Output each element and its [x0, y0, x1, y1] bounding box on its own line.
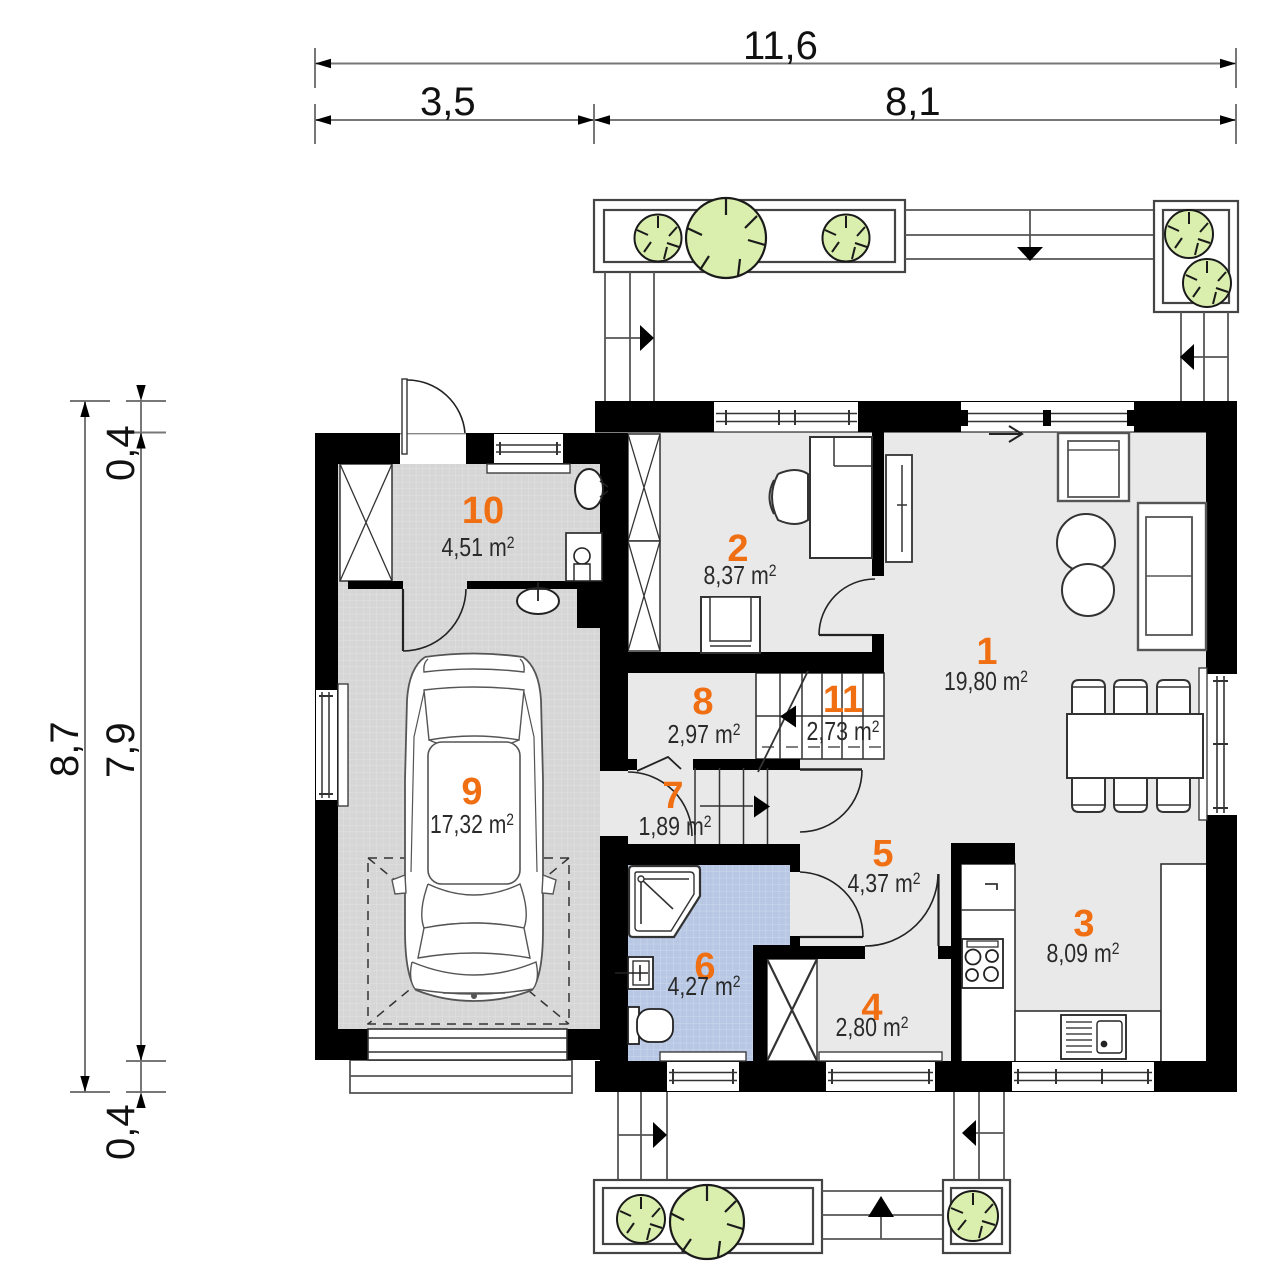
svg-text:8: 8	[692, 681, 713, 723]
svg-text:11: 11	[823, 679, 863, 721]
svg-text:1,89 m2: 1,89 m2	[639, 811, 712, 841]
svg-text:7,9: 7,9	[99, 722, 143, 778]
svg-text:4,27 m2: 4,27 m2	[668, 971, 741, 1001]
svg-text:2,80 m2: 2,80 m2	[836, 1012, 909, 1042]
svg-text:8,1: 8,1	[885, 80, 941, 124]
svg-text:10: 10	[462, 490, 504, 532]
svg-text:4,51 m2: 4,51 m2	[442, 532, 515, 562]
svg-text:17,32 m2: 17,32 m2	[430, 809, 514, 839]
svg-text:8,37 m2: 8,37 m2	[704, 560, 777, 590]
svg-text:8,09 m2: 8,09 m2	[1047, 938, 1120, 968]
svg-text:19,80 m2: 19,80 m2	[944, 666, 1028, 696]
svg-text:11,6: 11,6	[743, 24, 818, 68]
svg-text:2,97 m2: 2,97 m2	[668, 719, 741, 749]
svg-text:0,4: 0,4	[99, 425, 143, 481]
svg-text:9: 9	[461, 771, 482, 813]
svg-text:0,4: 0,4	[99, 1104, 143, 1160]
svg-text:2,73 m2: 2,73 m2	[807, 716, 880, 746]
svg-text:8,7: 8,7	[43, 721, 87, 777]
svg-text:3,5: 3,5	[420, 80, 476, 124]
svg-text:4,37 m2: 4,37 m2	[848, 868, 921, 898]
